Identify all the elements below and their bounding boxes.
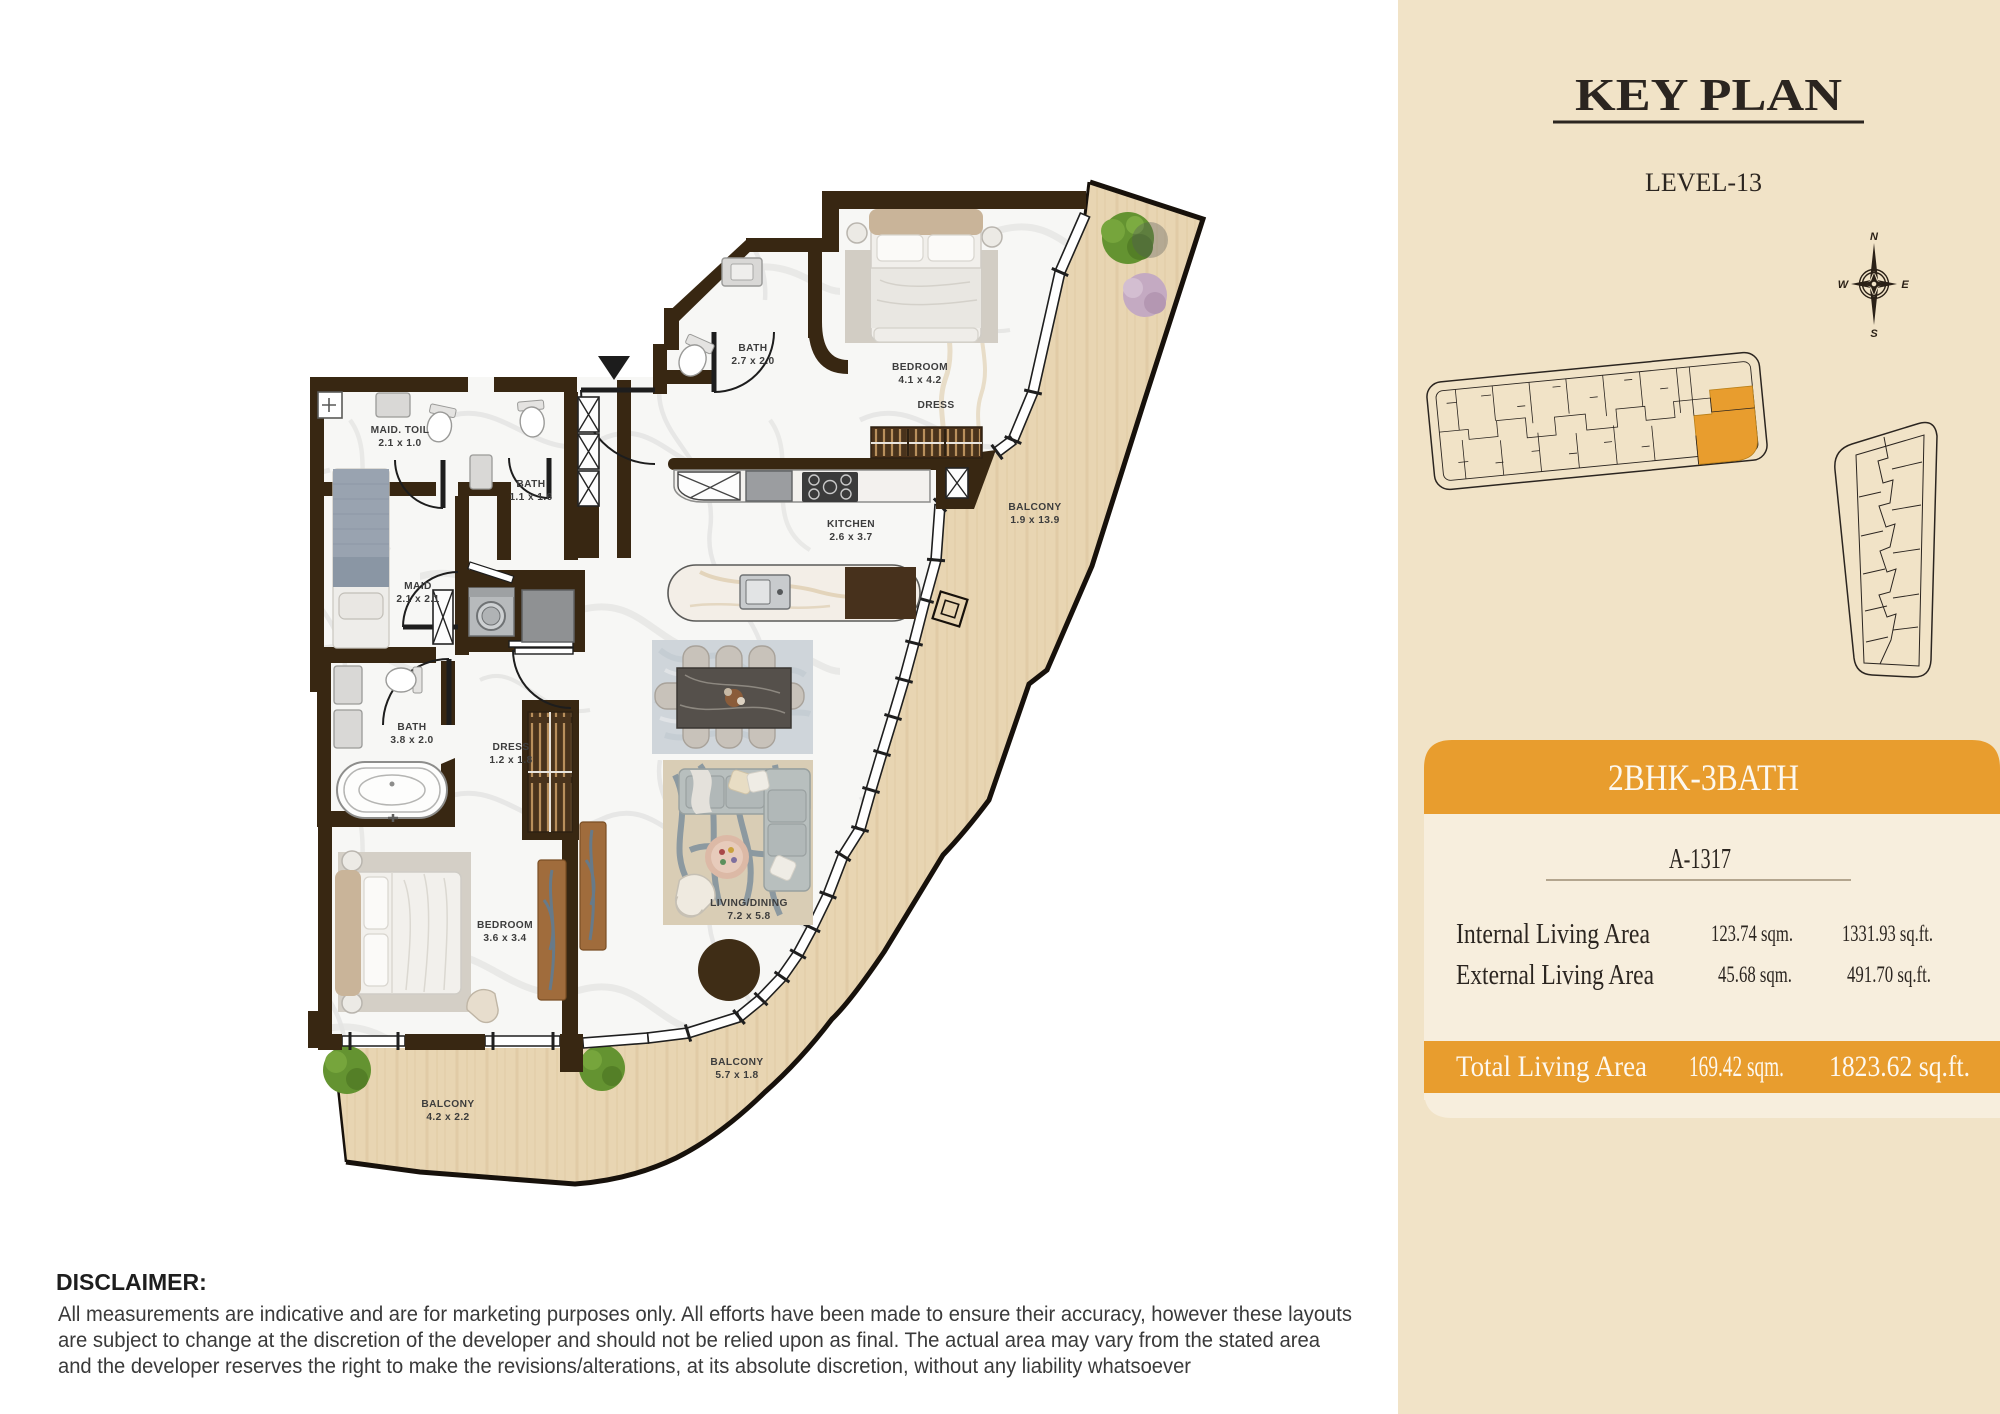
svg-text:MAID. TOIL: MAID. TOIL xyxy=(371,425,430,436)
svg-text:are subject to change at the d: are subject to change at the discretion … xyxy=(58,1329,1320,1352)
svg-text:E: E xyxy=(1901,279,1909,291)
svg-text:A-1317: A-1317 xyxy=(1669,843,1731,875)
svg-text:1.2 x 1.8: 1.2 x 1.8 xyxy=(489,755,532,766)
svg-text:DRESS: DRESS xyxy=(492,742,529,753)
svg-text:KEY PLAN: KEY PLAN xyxy=(1575,69,1842,120)
svg-text:1331.93 sq.ft.: 1331.93 sq.ft. xyxy=(1842,921,1933,946)
svg-text:4.1 x 4.2: 4.1 x 4.2 xyxy=(898,375,941,386)
svg-text:4.2 x 2.2: 4.2 x 2.2 xyxy=(426,1112,469,1123)
svg-text:S: S xyxy=(1870,328,1878,340)
svg-text:7.2 x 5.8: 7.2 x 5.8 xyxy=(727,911,770,922)
svg-text:All measurements are indicativ: All measurements are indicative and are … xyxy=(58,1303,1352,1326)
svg-text:2.6 x 3.7: 2.6 x 3.7 xyxy=(829,532,872,543)
svg-text:BATH: BATH xyxy=(516,479,545,490)
svg-text:491.70 sq.ft.: 491.70 sq.ft. xyxy=(1847,962,1931,987)
svg-text:BALCONY: BALCONY xyxy=(1008,502,1061,513)
svg-text:123.74 sqm.: 123.74 sqm. xyxy=(1711,921,1793,946)
svg-text:N: N xyxy=(1870,231,1879,243)
svg-text:DRESS: DRESS xyxy=(917,400,954,411)
svg-text:DISCLAIMER:: DISCLAIMER: xyxy=(56,1269,207,1295)
svg-text:External Living Area: External Living Area xyxy=(1456,960,1654,991)
svg-text:2.1 x 2.1: 2.1 x 2.1 xyxy=(396,594,439,605)
svg-text:Internal Living Area: Internal Living Area xyxy=(1456,919,1650,950)
svg-text:and the developer reserves the: and the developer reserves the right to … xyxy=(58,1355,1191,1378)
svg-text:169.42 sqm.: 169.42 sqm. xyxy=(1689,1050,1784,1083)
svg-text:2.1 x 1.0: 2.1 x 1.0 xyxy=(378,438,421,449)
svg-text:BALCONY: BALCONY xyxy=(710,1057,763,1068)
svg-text:1.9 x 13.9: 1.9 x 13.9 xyxy=(1010,515,1059,526)
svg-text:3.6 x 3.4: 3.6 x 3.4 xyxy=(483,933,526,944)
svg-text:BATH: BATH xyxy=(738,343,767,354)
svg-text:1.1 x 1.6: 1.1 x 1.6 xyxy=(509,492,552,503)
svg-text:2BHK-3BATH: 2BHK-3BATH xyxy=(1608,758,1799,799)
svg-text:BEDROOM: BEDROOM xyxy=(892,362,948,373)
svg-text:45.68 sqm.: 45.68 sqm. xyxy=(1718,962,1792,987)
svg-text:W: W xyxy=(1838,279,1850,291)
svg-text:BEDROOM: BEDROOM xyxy=(477,920,533,931)
svg-text:BALCONY: BALCONY xyxy=(421,1099,474,1110)
svg-text:LIVING/DINING: LIVING/DINING xyxy=(710,898,788,909)
svg-text:KITCHEN: KITCHEN xyxy=(827,519,875,530)
svg-text:MAID: MAID xyxy=(404,581,432,592)
svg-text:BATH: BATH xyxy=(397,722,426,733)
svg-text:Total Living Area: Total Living Area xyxy=(1456,1050,1647,1083)
svg-text:LEVEL-13: LEVEL-13 xyxy=(1645,168,1762,197)
svg-text:2.7 x 2.0: 2.7 x 2.0 xyxy=(731,356,774,367)
svg-text:3.8 x 2.0: 3.8 x 2.0 xyxy=(390,735,433,746)
svg-text:1823.62 sq.ft.: 1823.62 sq.ft. xyxy=(1829,1050,1970,1083)
svg-text:5.7 x 1.8: 5.7 x 1.8 xyxy=(715,1070,758,1081)
